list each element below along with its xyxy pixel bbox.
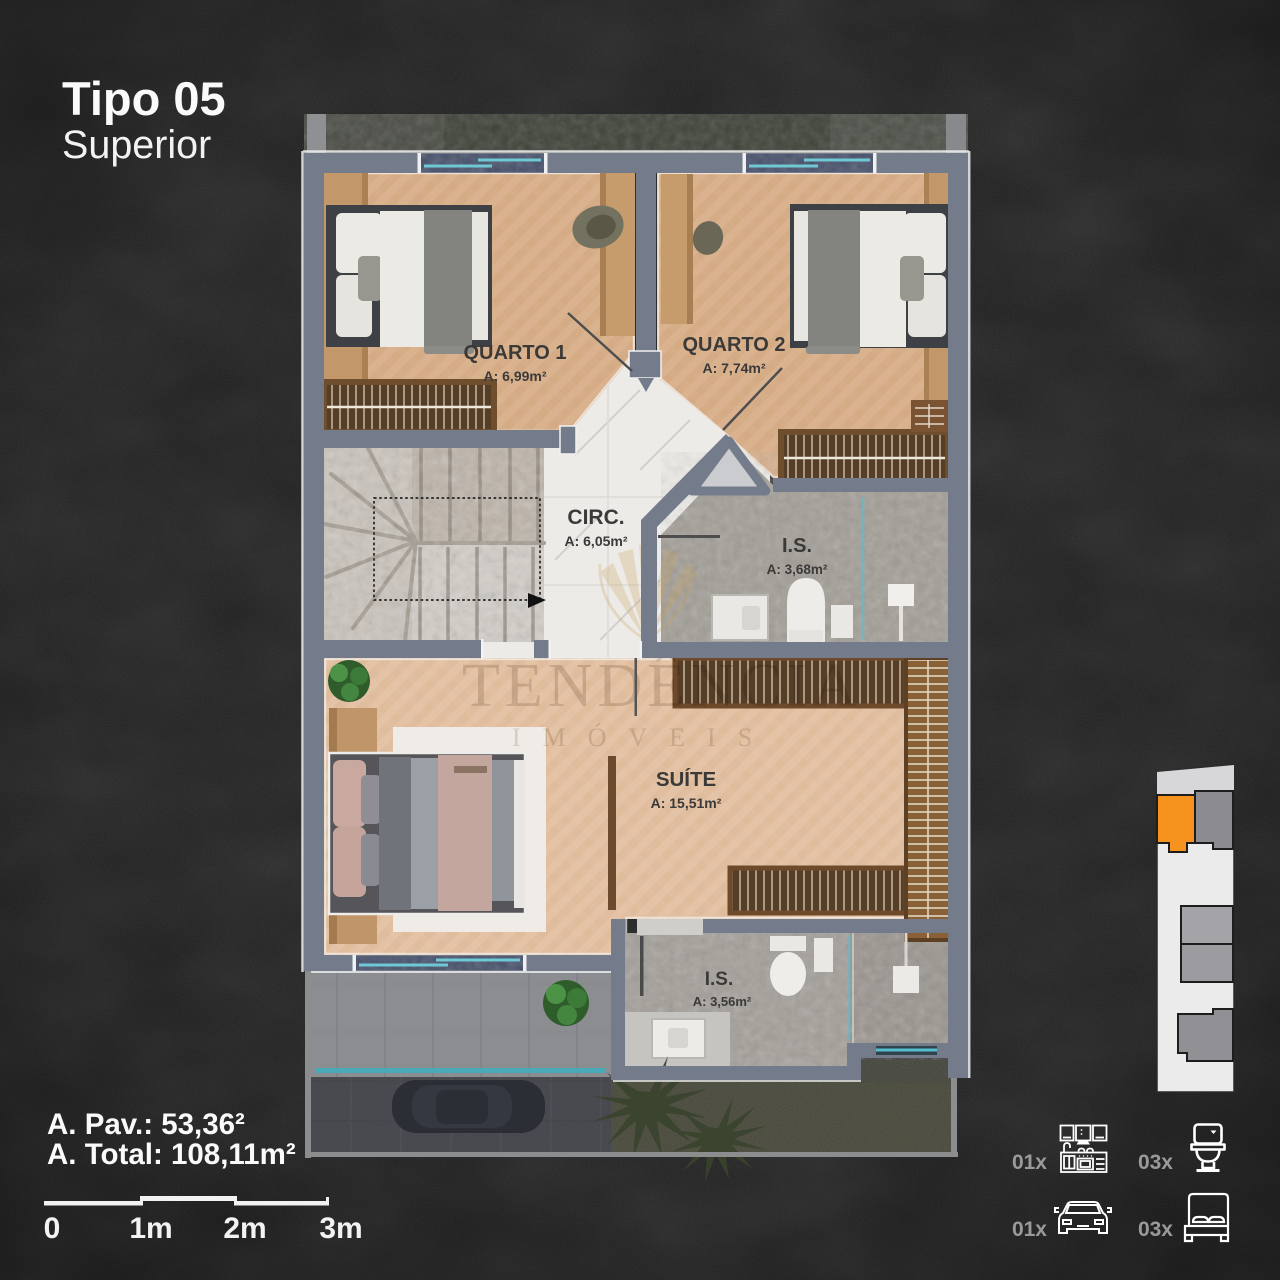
svg-text:03x: 03x: [1138, 1218, 1173, 1241]
svg-text:IMÓVEIS: IMÓVEIS: [512, 723, 774, 752]
svg-text:A: 3,56m²: A: 3,56m²: [693, 994, 752, 1009]
svg-text:3m: 3m: [319, 1212, 362, 1245]
svg-text:I.S.: I.S.: [705, 969, 734, 990]
svg-text:I.S.: I.S.: [782, 535, 812, 557]
svg-text:0: 0: [44, 1212, 61, 1245]
svg-text:Superior: Superior: [62, 123, 211, 167]
svg-text:Tipo 05: Tipo 05: [62, 72, 226, 125]
svg-text:01x: 01x: [1012, 1151, 1047, 1174]
svg-text:QUARTO 2: QUARTO 2: [683, 334, 786, 356]
svg-text:CIRC.: CIRC.: [567, 506, 624, 529]
svg-text:2m: 2m: [223, 1212, 266, 1245]
svg-text:A. Total: 108,11m²: A. Total: 108,11m²: [47, 1138, 296, 1171]
svg-text:TENDÊNCIA: TENDÊNCIA: [462, 652, 862, 720]
svg-text:A: 6,05m²: A: 6,05m²: [564, 533, 627, 549]
svg-text:QUARTO 1: QUARTO 1: [464, 342, 567, 364]
svg-text:A. Pav.: 53,36²: A. Pav.: 53,36²: [47, 1108, 245, 1141]
svg-text:A: 15,51m²: A: 15,51m²: [651, 795, 722, 811]
svg-text:1m: 1m: [129, 1212, 172, 1245]
svg-text:A: 7,74m²: A: 7,74m²: [702, 360, 765, 376]
svg-text:SUÍTE: SUÍTE: [656, 768, 716, 791]
svg-text:01x: 01x: [1012, 1218, 1047, 1241]
svg-text:A: 3,68m²: A: 3,68m²: [767, 562, 828, 577]
svg-text:03x: 03x: [1138, 1151, 1173, 1174]
svg-text:A: 6,99m²: A: 6,99m²: [483, 368, 546, 384]
